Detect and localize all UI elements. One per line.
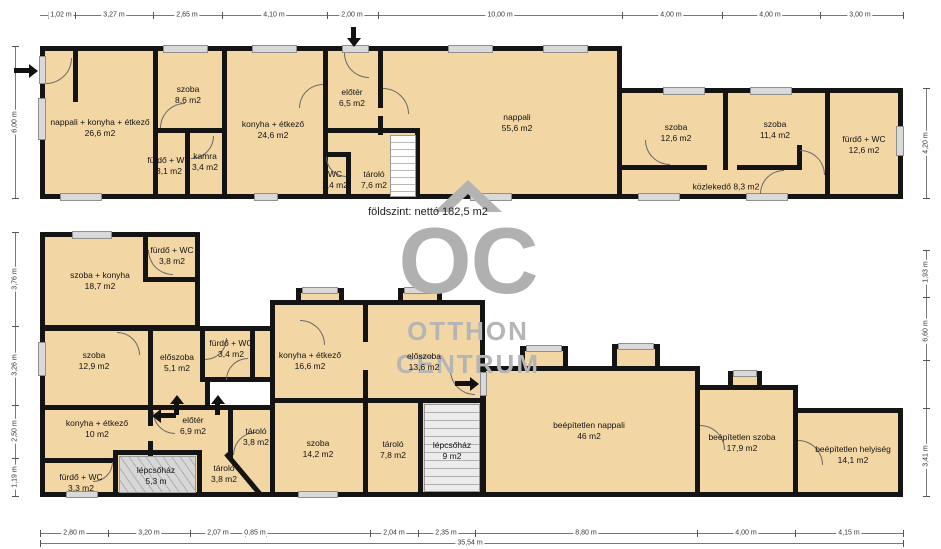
dim-tick xyxy=(475,530,476,537)
dim-tick xyxy=(12,326,19,327)
dim-tick xyxy=(923,198,930,199)
room-label: nappali55,6 m2 xyxy=(502,112,533,134)
dim-tick xyxy=(903,540,904,547)
dim-label-left: 6,00 m xyxy=(12,109,19,134)
wall xyxy=(222,46,227,199)
window xyxy=(746,193,788,201)
dim-label-top: 3,00 m xyxy=(847,12,872,19)
window xyxy=(663,87,705,95)
window xyxy=(618,343,654,350)
ground-floor-summary: földszint: nettó 182,5 m2 xyxy=(368,206,488,218)
dim-label-bottom: 3,20 m xyxy=(136,530,161,537)
room-label: kamra3,4 m2 xyxy=(186,151,224,173)
window xyxy=(298,491,338,498)
wall xyxy=(270,398,485,403)
room-label: szoba12,6 m2 xyxy=(661,122,692,144)
room-label: tároló3,8 m2 xyxy=(204,463,244,485)
dim-tick xyxy=(153,12,154,19)
wall xyxy=(323,128,420,133)
dim-label-right: 1,93 m xyxy=(923,259,930,284)
wall xyxy=(737,165,800,170)
room-label: előtér6,5 m2 xyxy=(339,87,365,109)
dim-label-top: 1,02 m xyxy=(48,12,73,19)
dim-label-top: 2,65 m xyxy=(174,12,199,19)
room-label: beépítetlen helyiség14,1 m2 xyxy=(815,444,891,466)
dim-tick xyxy=(820,12,821,19)
room-label: szoba + konyha18,7 m2 xyxy=(70,270,130,292)
window xyxy=(404,287,436,294)
dim-tick xyxy=(12,46,19,47)
dim-tick xyxy=(75,12,76,19)
room-label: konyha + étkező24,6 m2 xyxy=(242,119,304,141)
room-label: lépcsőház5,3 m xyxy=(137,465,175,487)
window xyxy=(38,98,46,140)
dim-tick xyxy=(370,530,371,537)
room-label: előszoba5,1 m2 xyxy=(160,352,194,374)
room-label: szoba11,4 m2 xyxy=(760,119,790,141)
dim-label-right: 4,20 m xyxy=(923,130,930,155)
window xyxy=(526,345,562,352)
room-label: beépítetlen szoba17,9 m2 xyxy=(708,432,775,454)
window xyxy=(750,87,792,95)
wall xyxy=(363,398,368,492)
wall xyxy=(143,277,200,282)
entry-arrow-icon xyxy=(351,27,356,38)
window xyxy=(163,45,208,53)
dim-label-top: 10,00 m xyxy=(485,12,514,19)
window xyxy=(448,45,493,53)
room-label: előtér6,9 m2 xyxy=(180,415,206,437)
dim-label-bottom: 2,35 m xyxy=(433,530,458,537)
dim-label-total-width: 35,54 m xyxy=(455,540,484,547)
room-label: fürdő + WC3,3 m2 xyxy=(59,472,102,494)
entry-arrow-icon xyxy=(174,404,179,415)
dim-tick xyxy=(190,530,191,537)
window xyxy=(896,126,904,156)
dim-label-right: 3,41 m xyxy=(923,443,930,468)
dim-label-bottom: 2,04 m xyxy=(381,530,406,537)
window xyxy=(254,193,278,201)
wall xyxy=(148,330,153,408)
window xyxy=(302,287,338,294)
dim-tick xyxy=(622,12,623,19)
dim-tick xyxy=(40,540,41,547)
room-label: előszoba13,6 m2 xyxy=(407,351,441,373)
dim-label-left: 3,26 m xyxy=(12,352,19,377)
room-label: fürdő + WC3,4 m2 xyxy=(208,338,254,360)
dim-label-top: 4,00 m xyxy=(658,12,683,19)
dim-tick xyxy=(903,12,904,19)
dim-tick xyxy=(923,408,930,409)
dim-tick xyxy=(108,530,109,537)
room-label: tároló7,6 m2 xyxy=(354,169,394,191)
dim-tick xyxy=(12,232,19,233)
window xyxy=(638,193,680,201)
dim-label-bottom: 4,15 m xyxy=(836,530,861,537)
room-label: konyha + étkező16,6 m2 xyxy=(279,350,341,372)
dim-label-top: 4,10 m xyxy=(261,12,286,19)
dim-label-top: 4,00 m xyxy=(757,12,782,19)
dim-tick xyxy=(40,530,41,537)
room-label: szoba8,6 m2 xyxy=(175,84,201,106)
window xyxy=(470,193,512,201)
dim-tick xyxy=(795,530,796,537)
wall xyxy=(113,450,202,455)
dim-line-bottom xyxy=(40,533,903,534)
dim-tick xyxy=(12,496,19,497)
room-label: fürdő + WC3,1 m2 xyxy=(147,155,191,177)
window xyxy=(38,342,46,376)
room-label: közlekedő 8,3 m2 xyxy=(693,181,760,192)
dim-tick xyxy=(12,405,19,406)
room-label: tároló3,8 m2 xyxy=(236,426,276,448)
entry-door xyxy=(39,56,46,84)
dim-tick xyxy=(697,530,698,537)
floor-plan-canvas: 1,02 m 3,27 m 2,65 m 4,10 m 2,00 m 10,00… xyxy=(0,0,941,549)
window xyxy=(72,231,112,239)
room-label: konyha + étkező10 m2 xyxy=(66,418,128,440)
entry-arrow-icon xyxy=(215,404,220,415)
dim-tick xyxy=(418,530,419,537)
wall xyxy=(363,370,368,400)
wall xyxy=(143,232,148,282)
dim-label-left: 1,19 m xyxy=(12,464,19,489)
window xyxy=(252,45,297,53)
dim-tick xyxy=(12,198,19,199)
room-label: tároló7,8 m2 xyxy=(372,439,414,461)
wall xyxy=(723,88,728,170)
window xyxy=(60,193,102,201)
dim-tick xyxy=(923,88,930,89)
dim-label-left: 3,76 m xyxy=(12,266,19,291)
dim-tick xyxy=(923,250,930,251)
wall xyxy=(363,300,368,342)
dim-tick xyxy=(378,12,379,19)
dim-label-bottom: 2,80 m xyxy=(61,530,86,537)
dim-tick xyxy=(722,12,723,19)
wall xyxy=(418,398,423,492)
wall xyxy=(73,46,78,102)
room-label: WC1,4 m2 xyxy=(321,169,349,191)
room-label: lépcsőház9 m2 xyxy=(433,440,471,462)
dim-tick xyxy=(923,297,930,298)
dim-label-top: 2,00 m xyxy=(339,12,364,19)
wall xyxy=(155,128,225,133)
dim-label-top: 3,27 m xyxy=(101,12,126,19)
dim-label-left: 2,50 m xyxy=(12,418,19,443)
dim-label-bottom: 0,85 m xyxy=(242,530,267,537)
room-label: fürdő + WC3,8 m2 xyxy=(150,245,193,267)
room-label: szoba12,9 m2 xyxy=(79,350,110,372)
room-label: beépítetlen nappali46 m2 xyxy=(553,420,625,442)
exit-door xyxy=(480,372,487,396)
wall xyxy=(825,88,830,199)
room-label: nappali + konyha + étkező26,6 m2 xyxy=(50,117,149,139)
window xyxy=(543,45,588,53)
wall xyxy=(113,450,118,497)
wall xyxy=(622,165,707,170)
entry-arrow-icon xyxy=(14,68,29,73)
exit-arrow-icon xyxy=(455,381,470,386)
dim-tick xyxy=(923,496,930,497)
dim-tick xyxy=(327,12,328,19)
dim-label-bottom: 4,00 m xyxy=(733,530,758,537)
room-label: szoba14,2 m2 xyxy=(303,438,334,460)
dim-label-bottom: 2,07 m xyxy=(205,530,230,537)
window xyxy=(733,370,757,377)
wall xyxy=(197,450,202,497)
dim-tick xyxy=(12,458,19,459)
dim-tick xyxy=(923,360,930,361)
room-label: fürdő + WC12,6 m2 xyxy=(842,134,885,156)
dim-tick xyxy=(903,530,904,537)
dim-label-right: 6,60 m xyxy=(923,318,930,343)
dim-tick xyxy=(222,12,223,19)
dim-label-bottom: 8,80 m xyxy=(573,530,598,537)
